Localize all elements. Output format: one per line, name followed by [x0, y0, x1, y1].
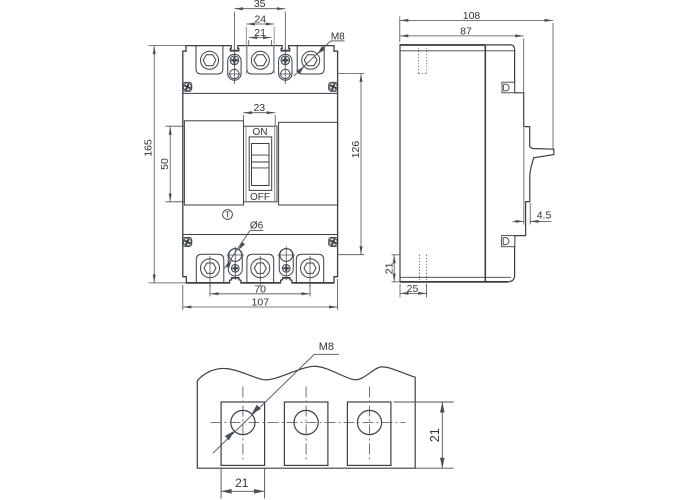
svg-text:21: 21 — [235, 476, 249, 490]
svg-text:108: 108 — [463, 10, 481, 22]
svg-text:24: 24 — [254, 14, 266, 26]
svg-text:50: 50 — [159, 158, 171, 170]
svg-text:23: 23 — [253, 102, 265, 114]
svg-text:21: 21 — [254, 27, 266, 39]
svg-text:126: 126 — [350, 141, 362, 159]
svg-text:M8: M8 — [319, 341, 334, 353]
svg-text:70: 70 — [254, 284, 266, 296]
svg-text:165: 165 — [143, 139, 155, 157]
svg-text:87: 87 — [460, 25, 472, 37]
svg-text:25: 25 — [407, 283, 419, 295]
svg-text:21: 21 — [383, 262, 395, 274]
svg-text:4.5: 4.5 — [537, 210, 552, 222]
svg-text:T: T — [225, 211, 230, 220]
svg-text:107: 107 — [252, 297, 270, 309]
svg-text:35: 35 — [254, 0, 266, 10]
svg-text:21: 21 — [428, 428, 442, 442]
svg-text:OFF: OFF — [250, 192, 270, 203]
svg-text:ON: ON — [253, 127, 268, 138]
svg-text:Ø6: Ø6 — [250, 221, 264, 232]
